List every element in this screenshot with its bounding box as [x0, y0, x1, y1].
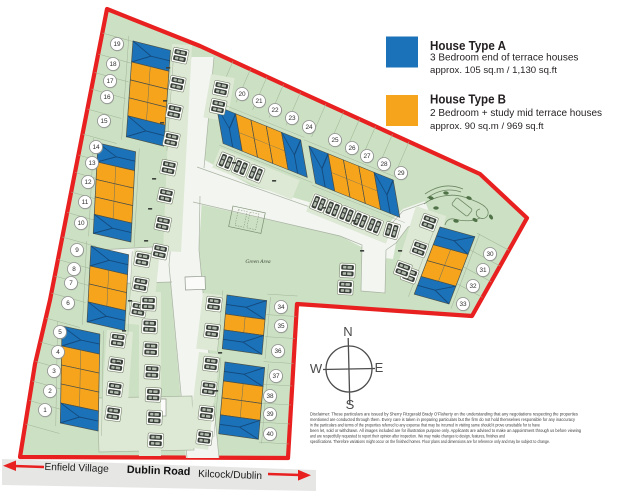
svg-text:in the particulars and terms o: in the particulars and terms of the prop…	[310, 423, 540, 428]
svg-text:specifications. Therefore vari: specifications. Therefore variations mig…	[310, 439, 550, 444]
svg-text:28: 28	[380, 161, 388, 168]
svg-text:2 Bedroom + study mid terrace: 2 Bedroom + study mid terrace houses	[430, 108, 602, 119]
svg-text:40: 40	[266, 431, 274, 438]
svg-text:18: 18	[109, 61, 117, 68]
svg-text:6: 6	[66, 300, 70, 307]
svg-text:35: 35	[277, 323, 285, 330]
svg-text:19: 19	[113, 41, 121, 48]
svg-text:1: 1	[43, 407, 47, 414]
svg-text:and are respectfully requested: and are respectfully requested to report…	[310, 434, 505, 439]
svg-text:24: 24	[305, 124, 313, 131]
svg-text:14: 14	[92, 144, 100, 151]
svg-text:W: W	[310, 361, 323, 376]
svg-text:13: 13	[88, 160, 96, 167]
svg-text:S: S	[346, 397, 355, 412]
svg-text:33: 33	[459, 301, 467, 308]
svg-text:5: 5	[58, 329, 62, 336]
svg-text:25: 25	[331, 137, 339, 144]
svg-text:7: 7	[69, 280, 73, 287]
svg-text:House Type B: House Type B	[430, 92, 506, 107]
svg-text:39: 39	[266, 411, 274, 418]
svg-text:31: 31	[479, 267, 487, 274]
svg-text:38: 38	[266, 393, 274, 400]
svg-text:Disclaimer: These particulars: Disclaimer: These particulars are issued…	[310, 412, 579, 417]
svg-text:Enfield Village: Enfield Village	[44, 462, 109, 475]
svg-text:21: 21	[255, 98, 263, 105]
svg-text:17: 17	[106, 78, 114, 85]
svg-text:mentioned are conducted throug: mentioned are conducted through them. Ev…	[310, 417, 576, 422]
svg-text:N: N	[343, 324, 352, 339]
svg-text:22: 22	[271, 107, 279, 114]
svg-text:27: 27	[363, 153, 371, 160]
svg-text:23: 23	[288, 115, 296, 122]
svg-text:36: 36	[274, 348, 282, 355]
svg-text:20: 20	[238, 91, 246, 98]
svg-text:26: 26	[348, 145, 356, 152]
svg-text:been let, sold or withdrawn. A: been let, sold or withdrawn. All images …	[310, 428, 581, 433]
svg-text:9: 9	[75, 247, 79, 254]
svg-text:Kilcock/Dublin: Kilcock/Dublin	[198, 469, 262, 482]
svg-text:approx. 90 sq.m / 969 sq.ft: approx. 90 sq.m / 969 sq.ft	[430, 121, 544, 132]
svg-text:11: 11	[82, 199, 89, 206]
svg-text:12: 12	[84, 179, 92, 186]
svg-text:approx. 105 sq.m / 1,130 sq.ft: approx. 105 sq.m / 1,130 sq.ft	[430, 65, 557, 76]
svg-text:8: 8	[72, 266, 76, 273]
svg-text:30: 30	[486, 251, 494, 258]
svg-text:House Type A: House Type A	[430, 38, 507, 53]
svg-text:E: E	[375, 360, 384, 375]
svg-text:3 Bedroom end of terrace house: 3 Bedroom end of terrace houses	[430, 53, 578, 64]
svg-text:4: 4	[56, 349, 60, 356]
svg-text:Green Area: Green Area	[245, 259, 271, 265]
svg-text:32: 32	[469, 283, 477, 290]
svg-text:10: 10	[77, 220, 85, 227]
svg-text:2: 2	[48, 388, 52, 395]
svg-text:3: 3	[52, 368, 56, 375]
svg-text:16: 16	[103, 94, 111, 101]
svg-text:37: 37	[272, 373, 280, 380]
svg-text:29: 29	[397, 170, 405, 177]
svg-text:34: 34	[277, 304, 285, 311]
svg-text:15: 15	[100, 118, 108, 125]
svg-text:Dublin Road: Dublin Road	[127, 464, 191, 478]
